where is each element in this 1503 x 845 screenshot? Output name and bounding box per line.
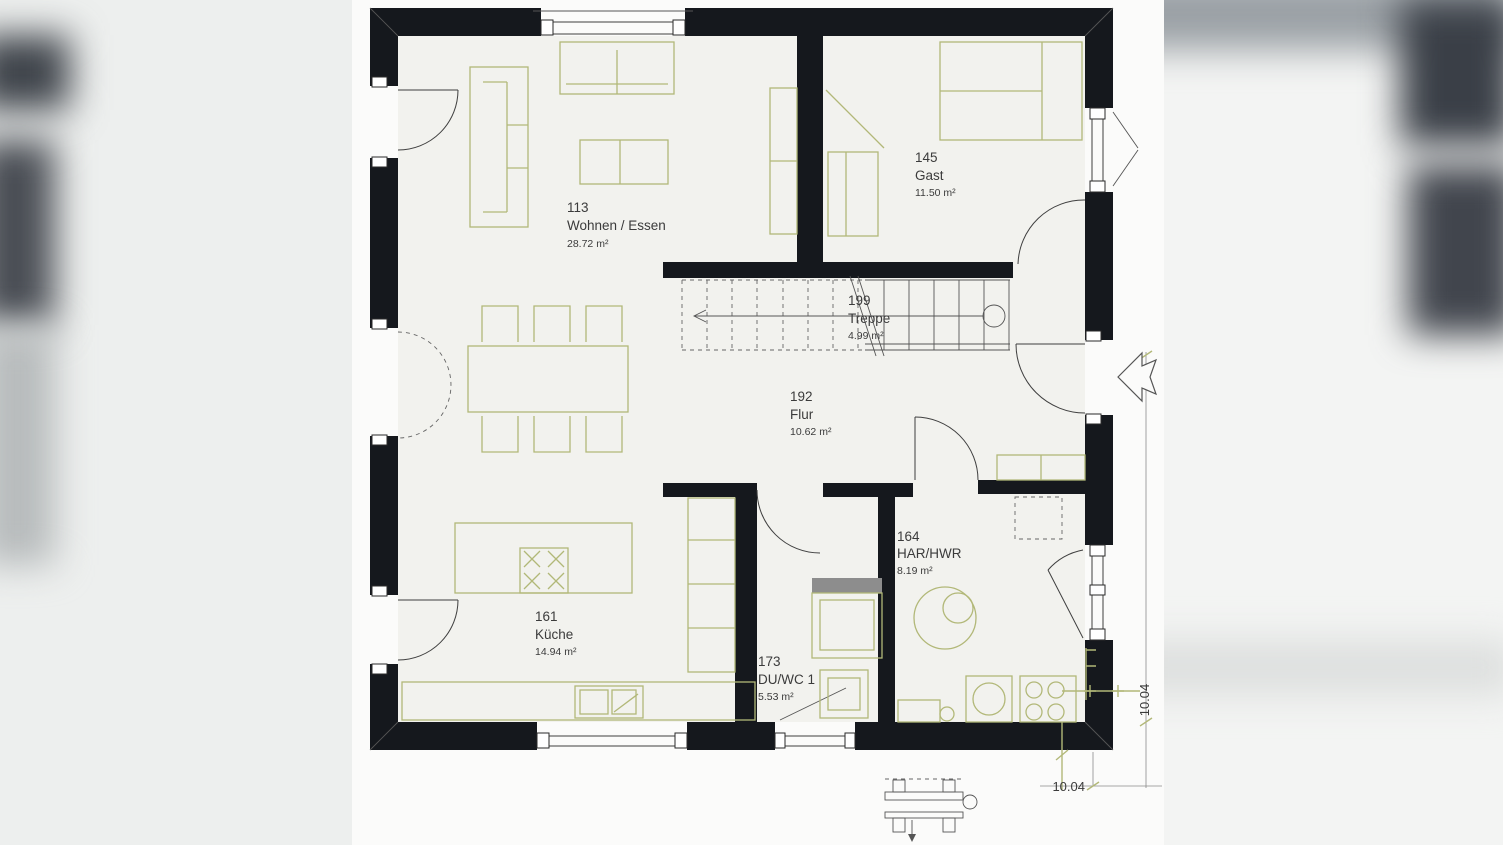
room-name: DU/WC 1 [758,672,815,687]
room-number: 164 [897,529,920,544]
room-number: 192 [790,389,813,404]
dimension-right: 10.04 [1137,684,1152,717]
room-number: 145 [915,150,938,165]
floorplan-page: 113 Wohnen / Essen 28.72 m² 145 Gast 11.… [0,0,1503,845]
room-name: HAR/HWR [897,546,962,561]
room-area: 14.94 m² [535,646,577,658]
down-arrow-icon [908,834,916,842]
room-area: 5.53 m² [758,691,794,703]
room-area: 10.62 m² [790,426,832,438]
room-area: 4.99 m² [848,330,884,342]
room-number: 161 [535,609,558,624]
section-marker-icon [885,779,977,842]
room-number: 113 [567,200,589,215]
room-area: 28.72 m² [567,238,609,250]
room-number: 173 [758,654,781,669]
room-number: 199 [848,293,871,308]
room-name: Treppe [848,311,890,326]
entrance-arrow-icon [1118,353,1156,401]
room-name: Gast [915,168,944,183]
floorplan-drawing: 113 Wohnen / Essen 28.72 m² 145 Gast 11.… [0,0,1503,845]
room-name: Wohnen / Essen [567,218,666,233]
shower-screen [812,578,882,593]
room-area: 8.19 m² [897,565,933,577]
room-name: Flur [790,407,814,422]
room-area: 11.50 m² [915,187,956,199]
dimension-bottom: 10.04 [1052,779,1085,794]
room-name: Küche [535,627,573,642]
